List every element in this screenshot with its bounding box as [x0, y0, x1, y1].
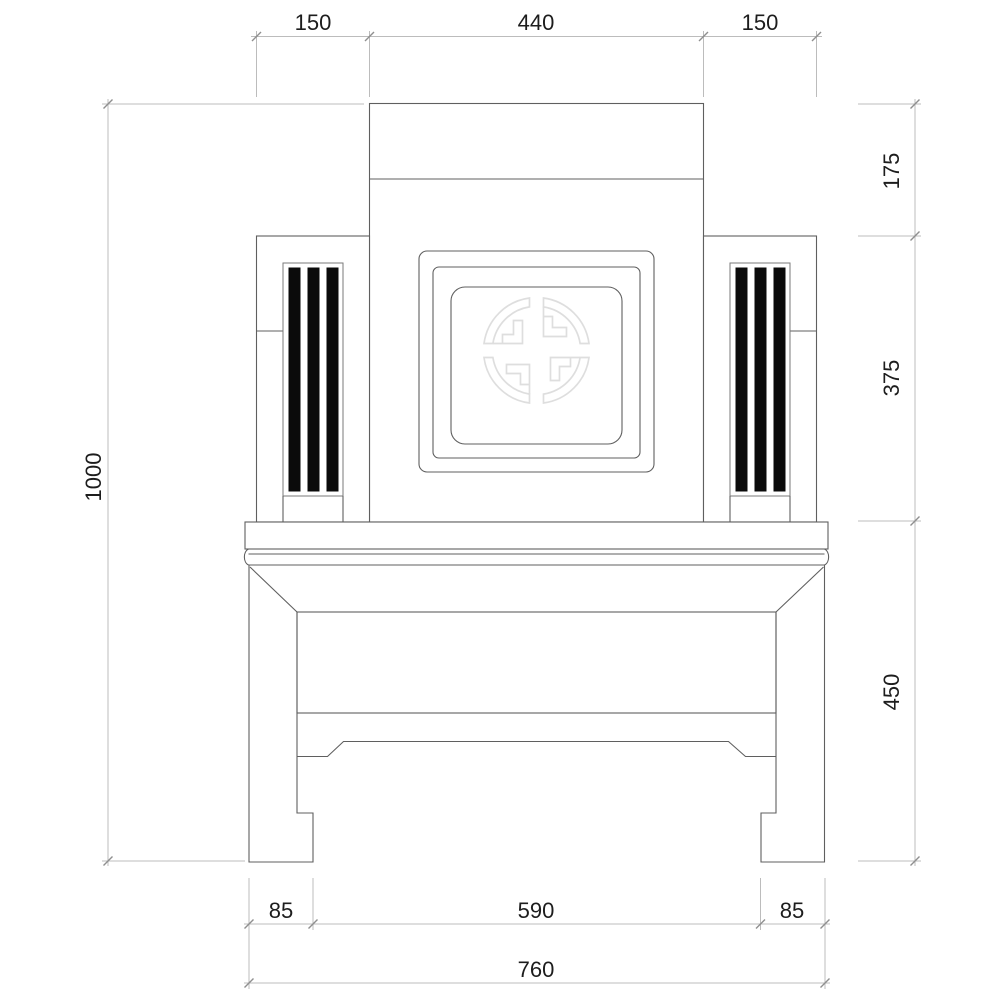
backrest-medallion-frame — [419, 251, 654, 472]
dim-label-right-450: 450 — [881, 674, 903, 711]
dimension-top — [251, 31, 822, 97]
dim-label-top-center-440: 440 — [518, 12, 555, 34]
dim-label-right-375: 375 — [881, 360, 903, 397]
right-armrest — [704, 236, 817, 522]
dim-label-bottom-760: 760 — [518, 959, 555, 981]
dim-label-bottom-right-85: 85 — [780, 900, 804, 922]
technical-drawing-canvas: 150 440 150 1000 175 375 450 85 590 85 7… — [0, 0, 1000, 1000]
dimension-right — [858, 99, 921, 866]
dim-label-top-left-150: 150 — [295, 12, 332, 34]
base — [249, 565, 825, 862]
seat-rail — [245, 522, 828, 549]
dim-label-left-1000: 1000 — [83, 453, 105, 502]
waist-molding — [244, 549, 828, 565]
dim-label-top-right-150: 150 — [742, 12, 779, 34]
chair-technical-drawing — [0, 0, 1000, 1000]
left-shoulder-slope — [250, 567, 297, 612]
dim-label-bottom-left-85: 85 — [269, 900, 293, 922]
dim-label-right-175: 175 — [881, 153, 903, 190]
dim-label-bottom-590: 590 — [518, 900, 555, 922]
fluted-apron-panel — [297, 612, 776, 713]
apron-bottom-edge — [297, 742, 776, 757]
left-armrest — [257, 236, 370, 522]
right-shoulder-slope — [776, 567, 824, 612]
